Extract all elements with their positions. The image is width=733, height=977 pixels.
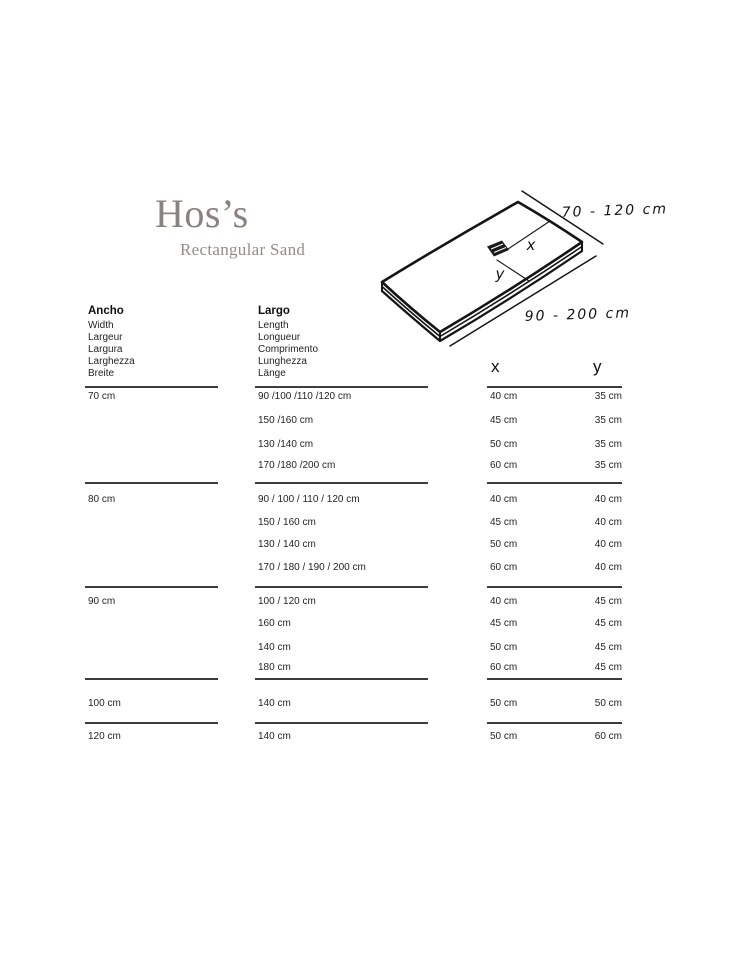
x-value: 40 cm bbox=[490, 494, 517, 506]
x-value: 45 cm bbox=[490, 618, 517, 630]
y-value: 50 cm bbox=[595, 698, 622, 710]
length-value: 130 /140 cm bbox=[258, 439, 313, 451]
y-value: 45 cm bbox=[595, 642, 622, 654]
width-value: 70 cm bbox=[88, 391, 115, 403]
brand-title: Hos’s bbox=[155, 193, 305, 235]
spec-sheet: Hos’s Rectangular Sand x y 70 - 120 cm 9… bbox=[0, 0, 733, 977]
y-value: 35 cm bbox=[595, 415, 622, 427]
column-rule bbox=[487, 482, 622, 484]
y-value: 40 cm bbox=[595, 517, 622, 529]
drain-position-column: x y 40 cm 35 cm 45 cm 35 cm 50 cm 35 cm … bbox=[487, 305, 622, 765]
y-value: 60 cm bbox=[595, 731, 622, 743]
width-value: 120 cm bbox=[88, 731, 121, 743]
x-value: 50 cm bbox=[490, 731, 517, 743]
column-rule bbox=[85, 586, 218, 588]
width-value: 100 cm bbox=[88, 698, 121, 710]
width-translation: Width bbox=[88, 320, 114, 332]
x-value: 60 cm bbox=[490, 562, 517, 574]
column-rule bbox=[85, 722, 218, 724]
y-value: 45 cm bbox=[595, 596, 622, 608]
brand-block: Hos’s Rectangular Sand bbox=[155, 193, 305, 260]
length-value: 130 / 140 cm bbox=[258, 539, 316, 551]
column-rule bbox=[255, 678, 428, 680]
column-rule bbox=[487, 678, 622, 680]
y-label: y bbox=[495, 265, 506, 283]
brand-subtitle: Rectangular Sand bbox=[180, 240, 305, 260]
column-rule bbox=[255, 482, 428, 484]
length-value: 140 cm bbox=[258, 642, 291, 654]
x-label: x bbox=[526, 236, 536, 254]
length-value: 170 /180 /200 cm bbox=[258, 460, 335, 472]
length-value: 100 / 120 cm bbox=[258, 596, 316, 608]
column-rule bbox=[85, 482, 218, 484]
length-value: 180 cm bbox=[258, 662, 291, 674]
width-range-label: 70 - 120 cm bbox=[561, 201, 668, 221]
width-column-title: Ancho bbox=[88, 305, 124, 317]
width-translation: Breite bbox=[88, 368, 114, 380]
y-value: 35 cm bbox=[595, 439, 622, 451]
width-value: 80 cm bbox=[88, 494, 115, 506]
x-value: 40 cm bbox=[490, 391, 517, 403]
length-translation: Length bbox=[258, 320, 289, 332]
x-value: 50 cm bbox=[490, 698, 517, 710]
width-translation: Larghezza bbox=[88, 356, 135, 368]
length-value: 150 / 160 cm bbox=[258, 517, 316, 529]
column-rule bbox=[255, 386, 428, 388]
column-rule bbox=[85, 386, 218, 388]
x-value: 60 cm bbox=[490, 460, 517, 472]
column-rule bbox=[85, 678, 218, 680]
x-value: 50 cm bbox=[490, 439, 517, 451]
length-translation: Länge bbox=[258, 368, 286, 380]
y-column-header: y bbox=[593, 357, 602, 377]
x-value: 60 cm bbox=[490, 662, 517, 674]
length-column-title: Largo bbox=[258, 305, 290, 317]
length-value: 140 cm bbox=[258, 731, 291, 743]
x-value: 50 cm bbox=[490, 642, 517, 654]
column-rule bbox=[487, 386, 622, 388]
length-translation: Comprimento bbox=[258, 344, 318, 356]
y-value: 35 cm bbox=[595, 460, 622, 472]
length-translation: Lunghezza bbox=[258, 356, 307, 368]
length-value: 160 cm bbox=[258, 618, 291, 630]
column-rule bbox=[487, 586, 622, 588]
x-value: 40 cm bbox=[490, 596, 517, 608]
x-value: 50 cm bbox=[490, 539, 517, 551]
y-value: 40 cm bbox=[595, 539, 622, 551]
x-value: 45 cm bbox=[490, 415, 517, 427]
column-rule bbox=[487, 722, 622, 724]
width-value: 90 cm bbox=[88, 596, 115, 608]
width-column: Ancho Width Largeur Largura Larghezza Br… bbox=[85, 305, 218, 765]
width-translation: Largeur bbox=[88, 332, 122, 344]
y-value: 40 cm bbox=[595, 562, 622, 574]
length-value: 150 /160 cm bbox=[258, 415, 313, 427]
column-rule bbox=[255, 722, 428, 724]
length-value: 170 / 180 / 190 / 200 cm bbox=[258, 562, 366, 574]
length-value: 90 / 100 / 110 / 120 cm bbox=[258, 494, 360, 506]
length-value: 140 cm bbox=[258, 698, 291, 710]
y-value: 45 cm bbox=[595, 662, 622, 674]
width-translation: Largura bbox=[88, 344, 122, 356]
y-value: 40 cm bbox=[595, 494, 622, 506]
length-value: 90 /100 /110 /120 cm bbox=[258, 391, 351, 403]
y-value: 45 cm bbox=[595, 618, 622, 630]
x-value: 45 cm bbox=[490, 517, 517, 529]
x-column-header: x bbox=[491, 357, 500, 377]
length-translation: Longueur bbox=[258, 332, 300, 344]
length-column: Largo Length Longueur Comprimento Lunghe… bbox=[255, 305, 428, 765]
column-rule bbox=[255, 586, 428, 588]
y-value: 35 cm bbox=[595, 391, 622, 403]
